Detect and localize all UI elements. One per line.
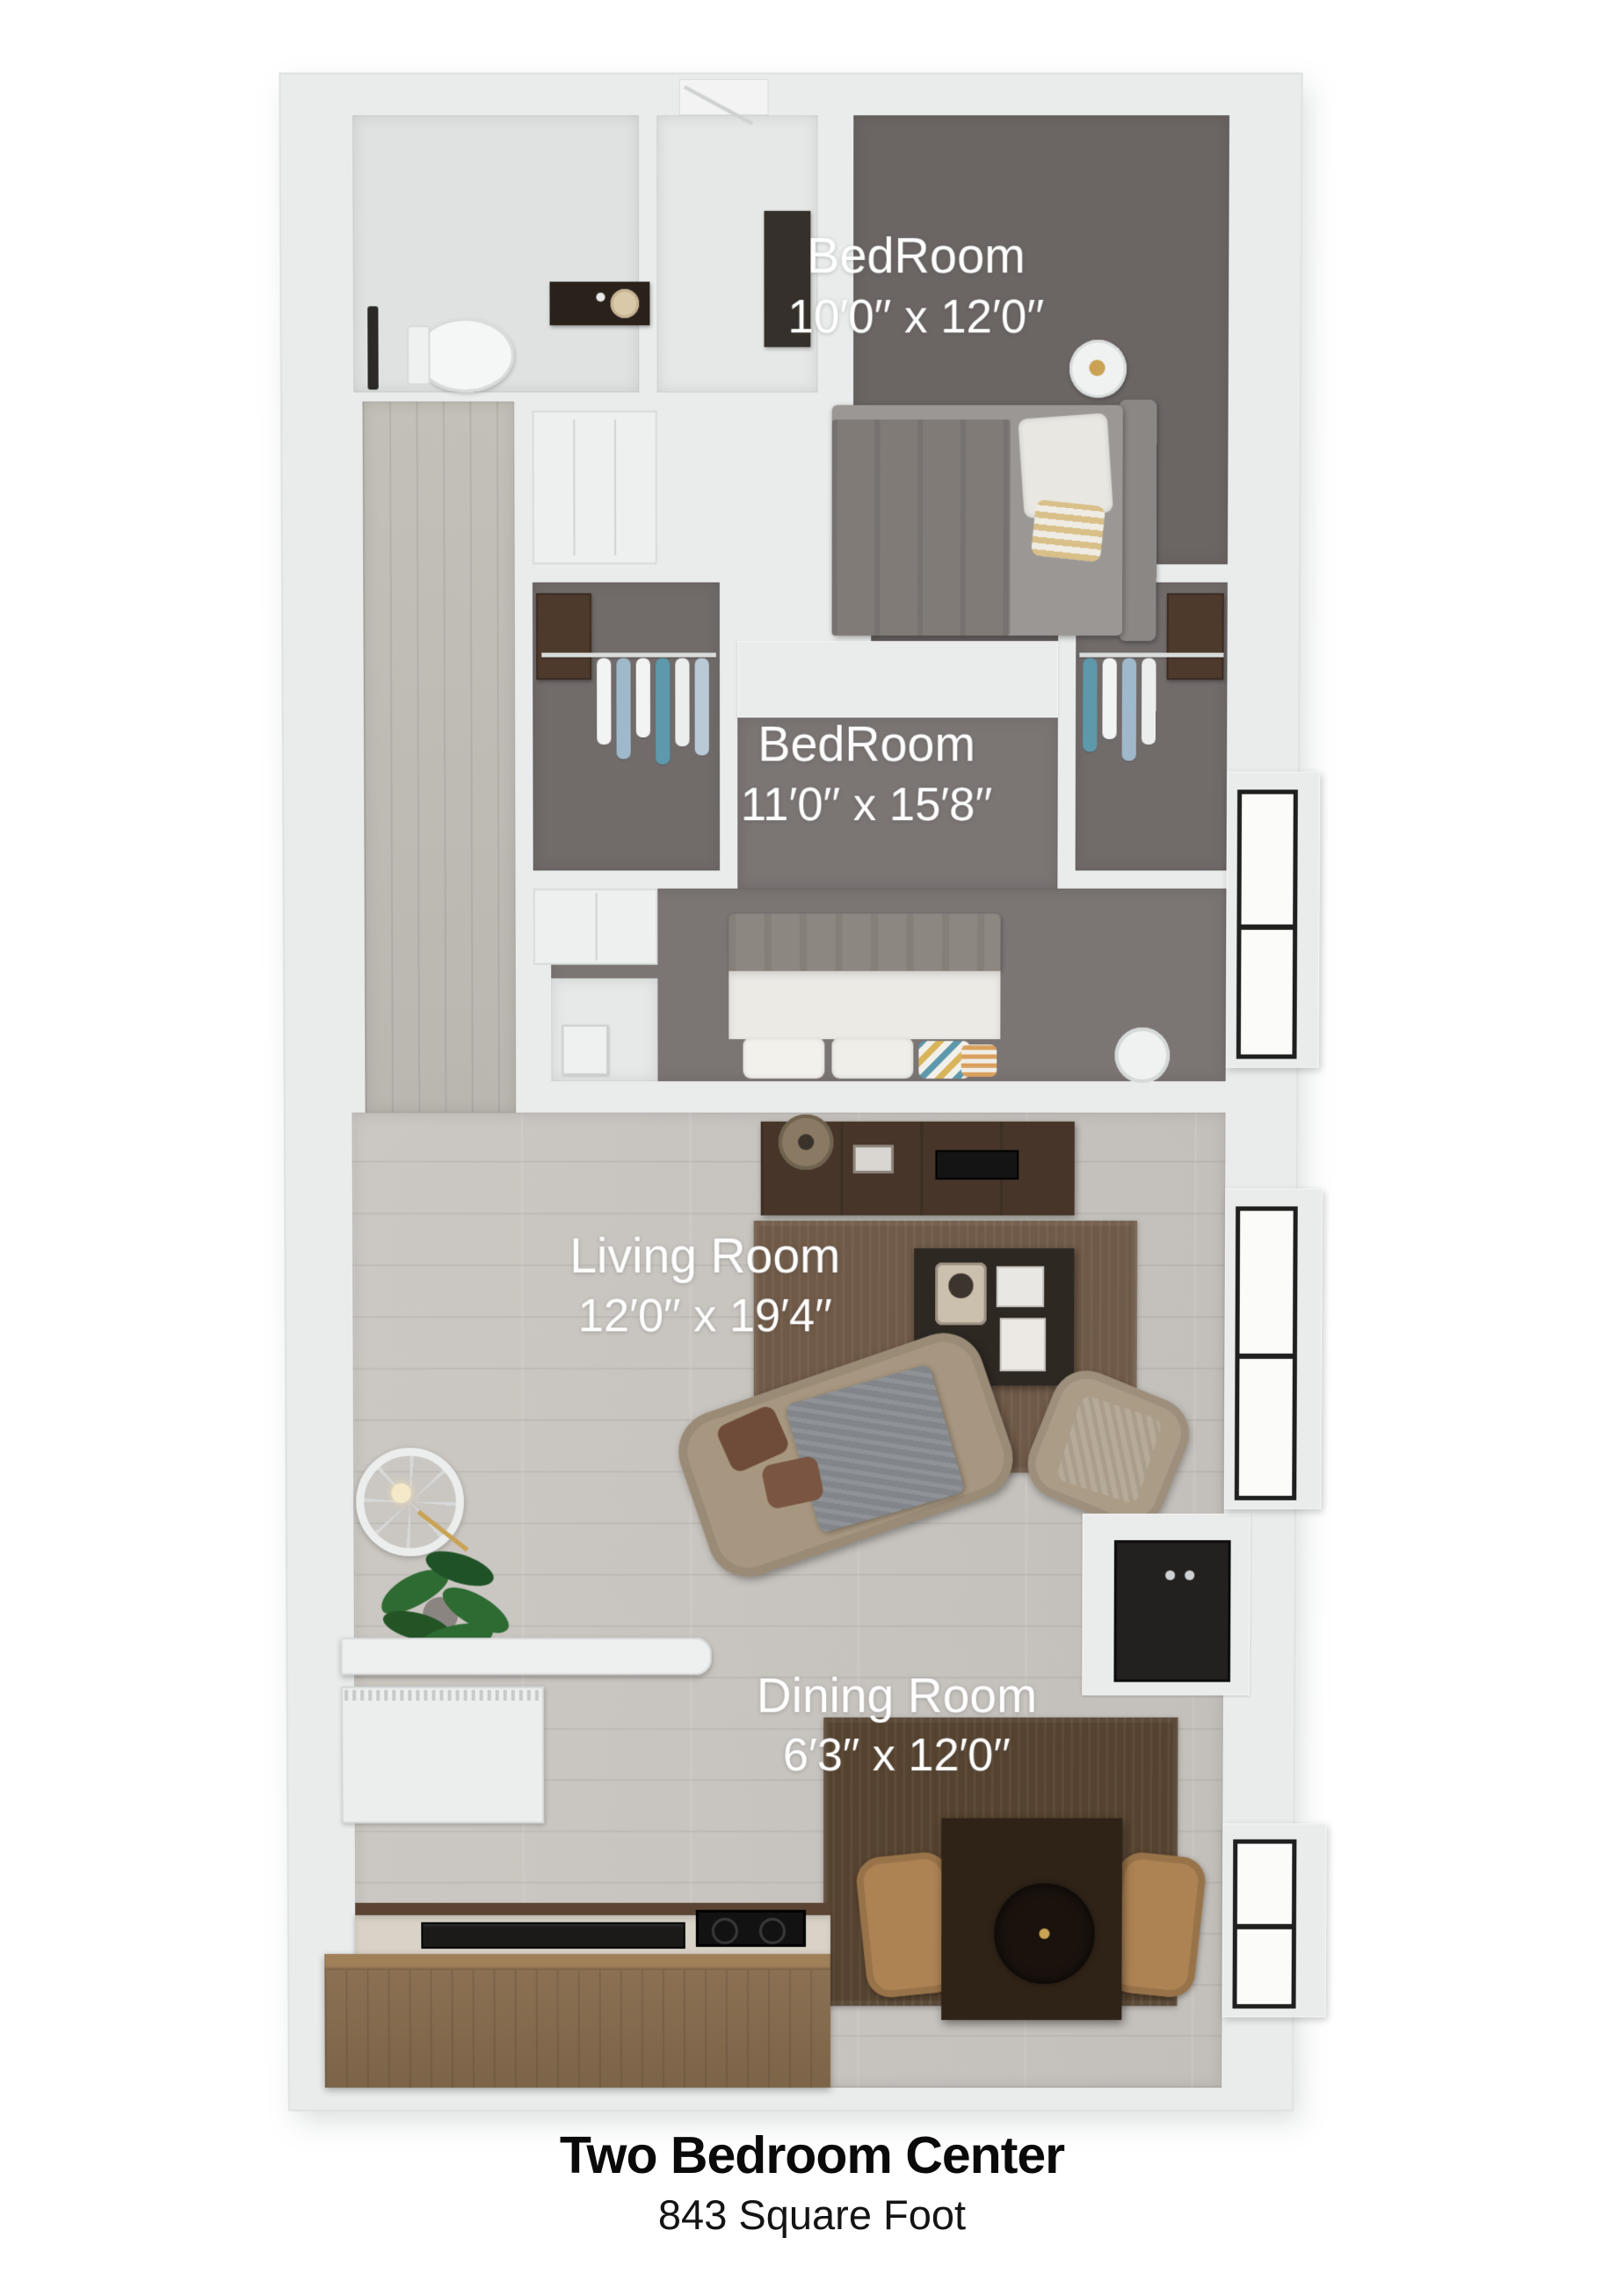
living-room-window [1235,1206,1298,1500]
dining-room-name: Dining Room [757,1664,1037,1726]
cabinet-knob [1165,1571,1175,1580]
peninsula-desk [341,1638,712,1675]
garment [695,658,709,756]
burner [759,1918,786,1944]
kitchen-island-top [324,1954,830,1970]
bed-2-pillow [831,1037,913,1079]
tray-bowl [948,1274,973,1298]
bed-1-headboard [1119,400,1156,642]
garment [1142,658,1156,745]
garment [1122,658,1137,761]
garment [636,658,650,737]
toilet-tank [407,325,431,385]
dining-room-label: Dining Room 6′3′′ x 12′0′′ [757,1664,1037,1785]
bedroom-2-window [1236,789,1298,1058]
bedroom-1-dims: 10′0′′ x 12′0′′ [787,287,1044,348]
cabinet-knob [1185,1571,1194,1580]
bedroom-2-label: BedRoom 11′0′′ x 15′8′′ [741,712,993,835]
platter-handle [1039,1929,1049,1939]
burner [712,1918,738,1944]
towel-rail [367,306,379,389]
garment [1083,658,1097,752]
hallway-floor [362,402,516,1113]
bedside-lamp [1089,360,1105,376]
living-room-name: Living Room [569,1224,840,1286]
garment [597,658,611,745]
bedroom-1-name: BedRoom [787,223,1044,287]
black-cabinet [1113,1540,1230,1682]
alcove-appliance [562,1025,608,1075]
bed-2-duvet [729,971,1000,1039]
laundry-basket [1114,1028,1170,1083]
closet-left-cabinet [536,593,591,680]
floor-lamp-bulb [391,1484,410,1503]
toilet-icon [416,318,514,393]
radiator-fins [344,1690,540,1701]
bedroom-2-name: BedRoom [741,712,993,775]
bed-1-blanket [832,419,1011,636]
closet-right-cabinet [1167,593,1224,680]
bed-1-pillow-striped [1031,499,1106,563]
living-room-dims: 12′0′′ x 19′4′′ [569,1287,840,1346]
floor-lamp-icon [356,1448,464,1556]
cooktop [696,1910,806,1947]
kitchen-island [324,1954,830,2088]
garment [675,658,689,746]
bed-2-pillow [743,1037,824,1079]
floor-plan-page: BedRoom 10′0′′ x 12′0′′ BedRoom 11 [0,0,1624,2274]
bed-2-blanket [729,913,1000,970]
dining-room-dims: 6′3′′ x 12′0′′ [757,1726,1037,1785]
console-lamp-bulb [798,1134,814,1150]
dining-window [1232,1840,1296,2009]
bedroom-2-door-panel [533,889,658,965]
hall-closet-doors [532,410,656,564]
closet-right-rod [1079,653,1223,657]
living-room-label: Living Room 12′0′′ x 19′4′′ [569,1224,840,1346]
apartment-floor-plan: BedRoom 10′0′′ x 12′0′′ BedRoom 11 [280,75,1301,2110]
coffee-table-magazine [1000,1318,1046,1371]
garment [1102,658,1116,739]
radiator [341,1687,544,1824]
plan-subtitle: 843 Square Foot [0,2190,1624,2239]
bed-2-pillow-striped [961,1044,997,1077]
closet-left-rod [541,653,716,657]
garment [656,658,670,765]
bedroom-2-dims: 11′0′′ x 15′8′′ [741,775,993,835]
garment [616,658,630,759]
closet-divider-wall [737,641,1058,717]
vanity-sink [611,289,640,318]
oven-front [421,1922,685,1949]
tv-screen [935,1150,1019,1180]
coffee-table-books [997,1266,1045,1307]
photo-frame [853,1144,894,1173]
bedroom-1-label: BedRoom 10′0′′ x 12′0′′ [787,223,1044,347]
vanity-faucet [596,293,605,302]
plan-title: Two Bedroom Center [0,2125,1624,2185]
